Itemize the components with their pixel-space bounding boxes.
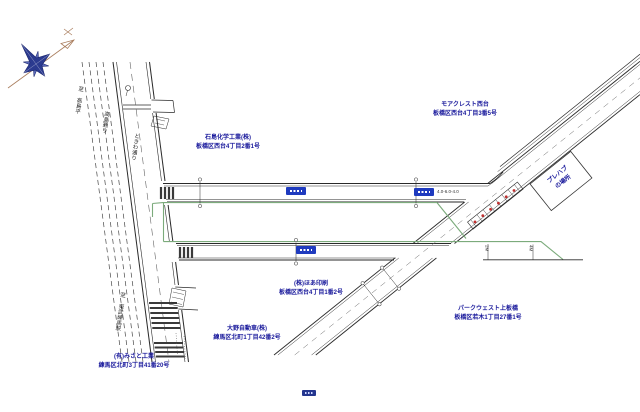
- company-label-hoa-insatsu: (株)ほあ印刷 板橋区西台4丁目1番2号: [279, 280, 343, 299]
- company-name: 石島化学工業(株): [196, 134, 260, 143]
- route-sign-badge: [286, 187, 306, 195]
- site-map-drawing: [0, 0, 640, 412]
- company-name: (有)みさと工業: [99, 353, 170, 362]
- company-address: 練馬区北町1丁目42番2号: [213, 334, 280, 343]
- company-name: モアクレスト西台: [433, 101, 497, 110]
- road-width-note: 4.0-6.0-4.0: [437, 189, 459, 194]
- crosswalk-main-road-mid: [149, 303, 180, 328]
- compass-rose: [6, 28, 74, 90]
- route-sign-badge: [414, 188, 434, 196]
- dimension-note-left: 2M: [484, 245, 489, 251]
- company-label-ohno: 大野自動車(株) 練馬区北町1丁目42番2号: [213, 325, 280, 344]
- company-label-misato: (有)みさと工業 練馬区北町3丁目41番20号: [99, 353, 170, 372]
- side-street-east: [169, 287, 198, 310]
- work-zone-outline: [153, 203, 564, 260]
- company-name: (株)ほあ印刷: [279, 280, 343, 289]
- company-address: 練馬区北町3丁目41番20号: [99, 362, 170, 371]
- company-address: 板橋区若木1丁目27番1号: [454, 314, 521, 323]
- company-label-moa-crest: モアクレスト西台 板橋区西台4丁目3番5号: [433, 101, 497, 120]
- road-a-upper: [163, 172, 503, 202]
- company-name: 大野自動車(株): [213, 325, 280, 334]
- company-label-park-west: パークウェスト上板橋 板橋区若木1丁目27番1号: [454, 305, 521, 324]
- work-strip-red-markers: [468, 182, 524, 229]
- company-name: パークウェスト上板橋: [454, 305, 521, 314]
- side-street-stub-north: [151, 100, 175, 129]
- railway-boundary-dashed-lines: [82, 62, 143, 362]
- dimension-note-right: 4M: [528, 245, 533, 251]
- signal-symbol-icon: [126, 86, 131, 91]
- sheet-stamp: [302, 390, 316, 396]
- company-label-ishijima: 石島化学工業(株) 板橋区西台4丁目2番1号: [196, 134, 260, 153]
- company-address: 板橋区西台4丁目3番5号: [433, 110, 497, 119]
- site-plan-page: { "colors": { "line": "#2a2a2a", "work_z…: [0, 0, 640, 412]
- company-address: 板橋区西台4丁目1番2号: [279, 289, 343, 298]
- company-address: 板橋区西台4丁目2番1号: [196, 143, 260, 152]
- route-sign-badge: [296, 246, 316, 254]
- north-arrow-icon: [64, 28, 73, 35]
- crosswalk-road-b: [180, 247, 192, 258]
- crosswalk-road-a: [161, 187, 173, 199]
